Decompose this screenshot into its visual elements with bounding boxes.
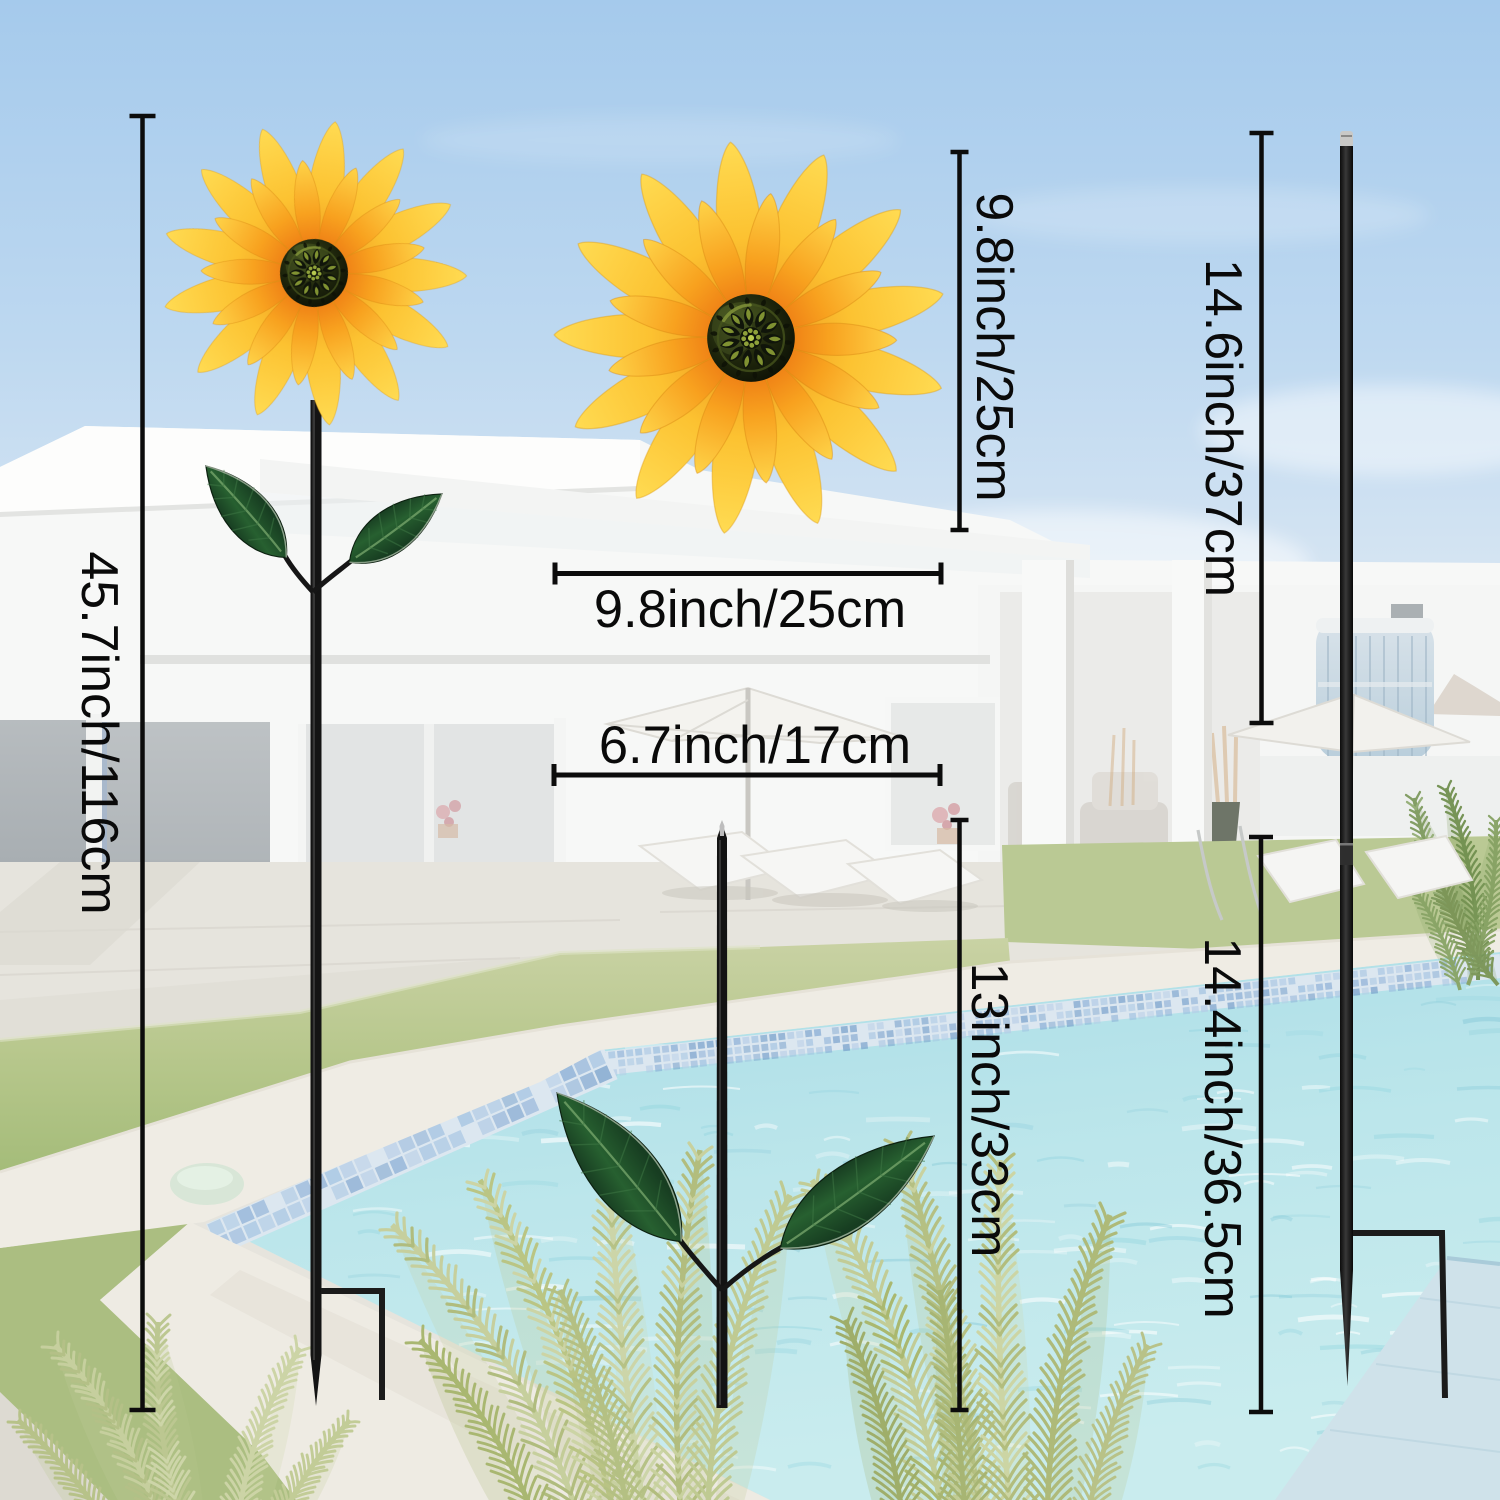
svg-text:9.8inch/25cm: 9.8inch/25cm <box>594 580 906 639</box>
svg-text:14.4inch/36.5cm: 14.4inch/36.5cm <box>1193 937 1251 1319</box>
svg-text:45.7inch/116cm: 45.7inch/116cm <box>70 551 128 914</box>
svg-text:9.8inch/25cm: 9.8inch/25cm <box>965 192 1023 501</box>
svg-text:13inch/33cm: 13inch/33cm <box>960 963 1018 1258</box>
svg-text:14.6inch/37cm: 14.6inch/37cm <box>1194 259 1252 597</box>
svg-text:6.7inch/17cm: 6.7inch/17cm <box>599 716 911 775</box>
